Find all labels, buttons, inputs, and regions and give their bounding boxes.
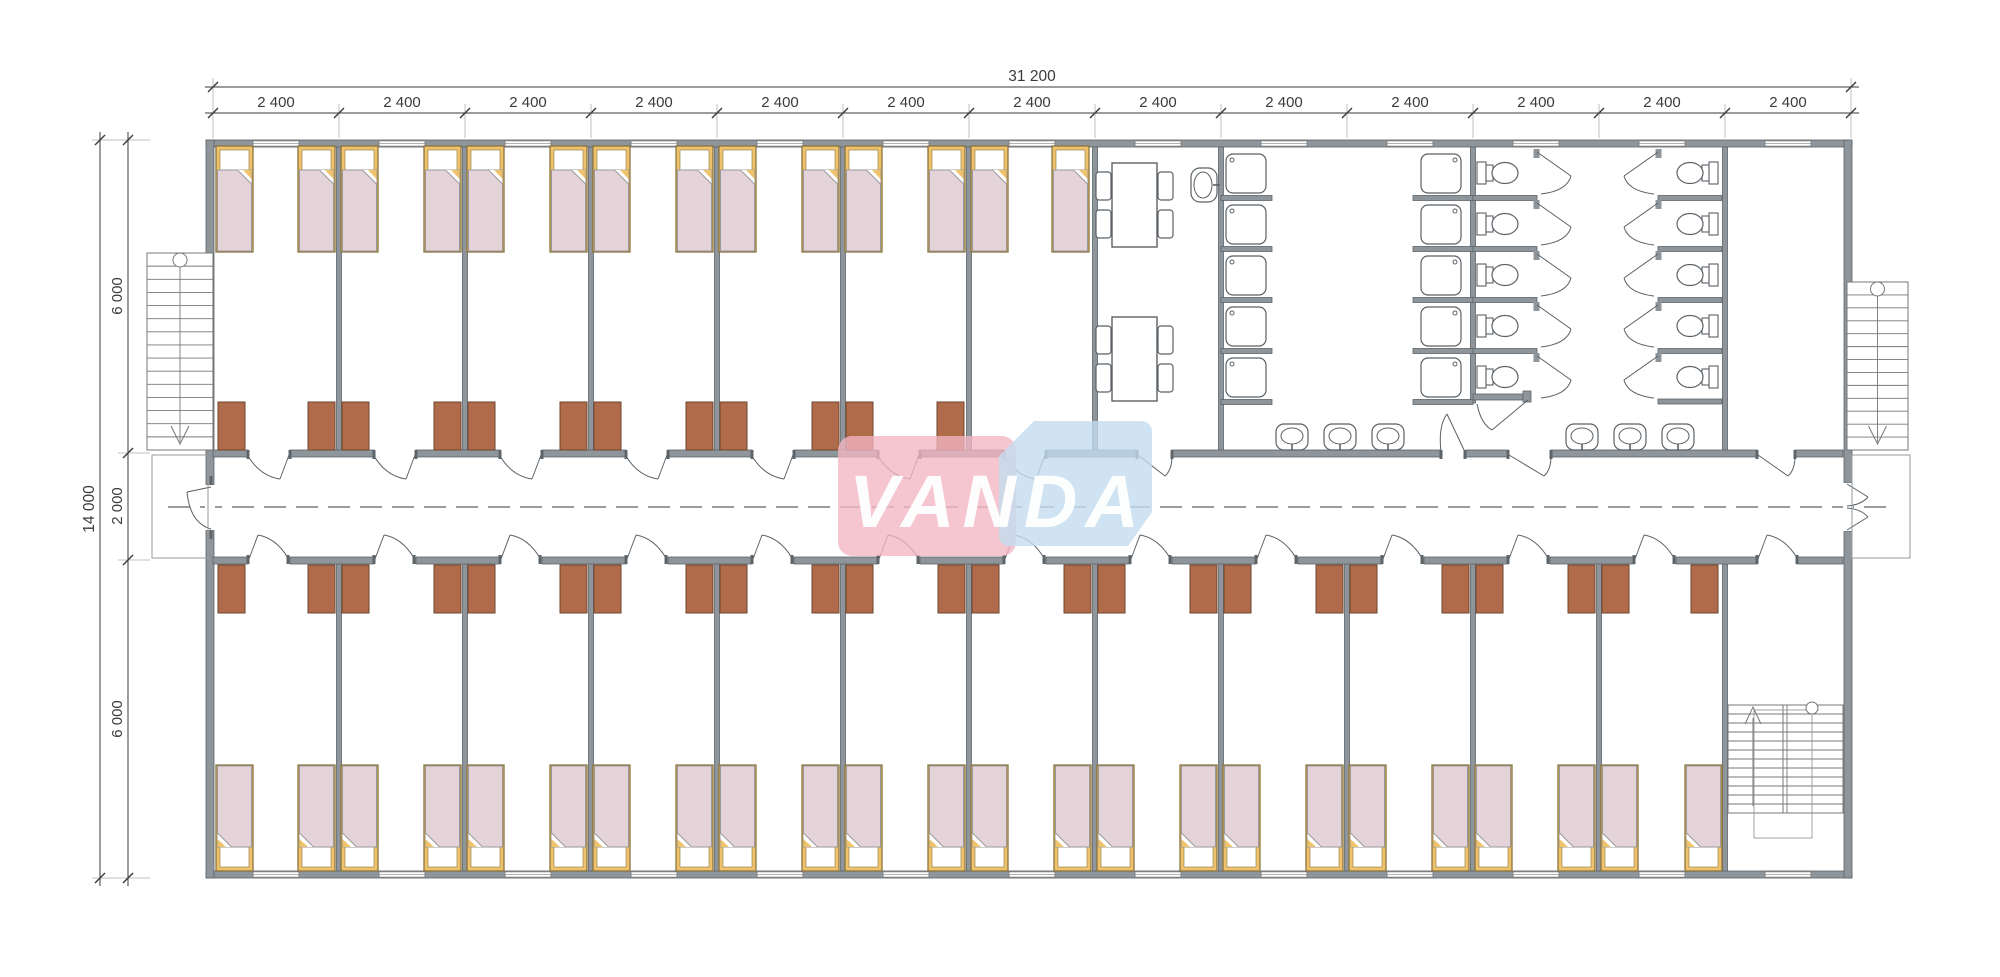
bed: [216, 146, 253, 252]
shower-stall: [1226, 154, 1266, 193]
bed: [341, 765, 378, 871]
toilet: [1477, 264, 1518, 286]
bed: [1052, 146, 1089, 252]
dim-label: 2 400: [1517, 94, 1555, 111]
wardrobe: [846, 565, 873, 613]
bed: [1180, 765, 1217, 871]
dim-label: 2 400: [1265, 94, 1303, 111]
wardrobe: [434, 402, 461, 450]
bed: [341, 146, 378, 252]
dining-table: [1096, 317, 1173, 401]
toilet: [1477, 315, 1518, 337]
bed: [424, 765, 461, 871]
bed: [1558, 765, 1595, 871]
bed: [845, 765, 882, 871]
wardrobe: [938, 565, 965, 613]
shower-stall: [1421, 358, 1461, 397]
vanda-logo: VANDA: [838, 421, 1152, 556]
wardrobe: [1224, 565, 1251, 613]
wardrobe: [342, 565, 369, 613]
logo-text: VANDA: [849, 460, 1147, 543]
shower-stall: [1226, 307, 1266, 346]
sink: [1276, 424, 1308, 450]
shower-stall: [1421, 307, 1461, 346]
wardrobe: [342, 402, 369, 450]
wardrobe: [560, 402, 587, 450]
bed: [802, 146, 839, 252]
wardrobe: [468, 402, 495, 450]
wardrobe: [1476, 565, 1503, 613]
bed: [1054, 765, 1091, 871]
wardrobe: [1442, 565, 1469, 613]
bed: [1306, 765, 1343, 871]
bed: [928, 146, 965, 252]
bed: [845, 146, 882, 252]
wardrobe: [434, 565, 461, 613]
shower-stall: [1421, 154, 1461, 193]
wardrobe: [686, 402, 713, 450]
toilet: [1677, 213, 1718, 235]
sink: [1372, 424, 1404, 450]
bed: [298, 765, 335, 871]
wardrobe: [1602, 565, 1629, 613]
floor-plan-drawing: 31 2002 4002 4002 4002 4002 4002 4002 40…: [0, 0, 2000, 977]
bed: [719, 146, 756, 252]
dim-label: 2 400: [1013, 94, 1051, 111]
bed: [550, 146, 587, 252]
dim-label: 2 400: [1769, 94, 1807, 111]
wardrobe: [218, 565, 245, 613]
dining-table: [1096, 163, 1173, 247]
wardrobe: [812, 402, 839, 450]
wardrobe: [972, 565, 999, 613]
shower-stall: [1421, 205, 1461, 244]
wardrobe: [308, 565, 335, 613]
wardrobe: [218, 402, 245, 450]
shower-stall: [1226, 205, 1266, 244]
wardrobe: [1098, 565, 1125, 613]
wall-sinks: [1276, 424, 1694, 450]
toilet: [1477, 162, 1518, 184]
shower-stall: [1421, 256, 1461, 295]
dim-label: 2 400: [635, 94, 673, 111]
bed: [676, 765, 713, 871]
wardrobe: [1568, 565, 1595, 613]
wardrobe: [720, 402, 747, 450]
wardrobe: [1350, 565, 1377, 613]
wardrobe: [594, 565, 621, 613]
bed: [1685, 765, 1722, 871]
wardrobe: [1316, 565, 1343, 613]
wardrobe: [308, 402, 335, 450]
sink: [1324, 424, 1356, 450]
bed: [802, 765, 839, 871]
wardrobe: [1691, 565, 1718, 613]
dim-label: 2 400: [1643, 94, 1681, 111]
dim-label: 2 400: [887, 94, 925, 111]
toilet: [1677, 162, 1718, 184]
dim-label: 6 000: [109, 700, 126, 738]
bed: [467, 146, 504, 252]
wardrobe: [720, 565, 747, 613]
wardrobe: [812, 565, 839, 613]
bed: [719, 765, 756, 871]
toilet: [1677, 264, 1718, 286]
staircase-exterior-left: [147, 253, 213, 450]
toilet: [1677, 366, 1718, 388]
bed: [1097, 765, 1134, 871]
wardrobe: [594, 402, 621, 450]
staircase-exterior-right: [1847, 282, 1908, 450]
bed: [424, 146, 461, 252]
dim-label: 2 400: [509, 94, 547, 111]
floor-plan: 31 2002 4002 4002 4002 4002 4002 4002 40…: [0, 0, 2000, 977]
toilet: [1477, 366, 1518, 388]
dim-label: 2 400: [383, 94, 421, 111]
bed: [467, 765, 504, 871]
bed: [928, 765, 965, 871]
dim-label: 31 200: [1008, 68, 1056, 85]
bed: [593, 146, 630, 252]
wardrobe: [560, 565, 587, 613]
dim-label: 2 000: [109, 487, 126, 525]
bed: [1475, 765, 1512, 871]
toilet: [1477, 213, 1518, 235]
bed: [1223, 765, 1260, 871]
sink: [1662, 424, 1694, 450]
bed: [1432, 765, 1469, 871]
bed: [1349, 765, 1386, 871]
staircase-interior: [1728, 702, 1843, 838]
bed: [971, 146, 1008, 252]
shower-stall: [1226, 256, 1266, 295]
shower-stall: [1226, 358, 1266, 397]
dining-sink: [1191, 168, 1220, 202]
wardrobe: [468, 565, 495, 613]
dim-label: 2 400: [257, 94, 295, 111]
bed: [1601, 765, 1638, 871]
shower-stalls: [1221, 154, 1473, 405]
bed: [550, 765, 587, 871]
dim-label: 6 000: [109, 277, 126, 315]
bed: [971, 765, 1008, 871]
wardrobe: [1190, 565, 1217, 613]
sink: [1566, 424, 1598, 450]
wardrobe: [686, 565, 713, 613]
dim-label: 2 400: [761, 94, 799, 111]
dining-area: [1096, 163, 1220, 401]
wardrobe: [1064, 565, 1091, 613]
dim-label: 2 400: [1391, 94, 1429, 111]
dim-label: 14 000: [81, 485, 98, 533]
bed: [676, 146, 713, 252]
sink: [1614, 424, 1646, 450]
bed: [593, 765, 630, 871]
bed: [298, 146, 335, 252]
toilet: [1677, 315, 1718, 337]
toilet-stalls: [1473, 149, 1722, 404]
dim-label: 2 400: [1139, 94, 1177, 111]
bed: [216, 765, 253, 871]
